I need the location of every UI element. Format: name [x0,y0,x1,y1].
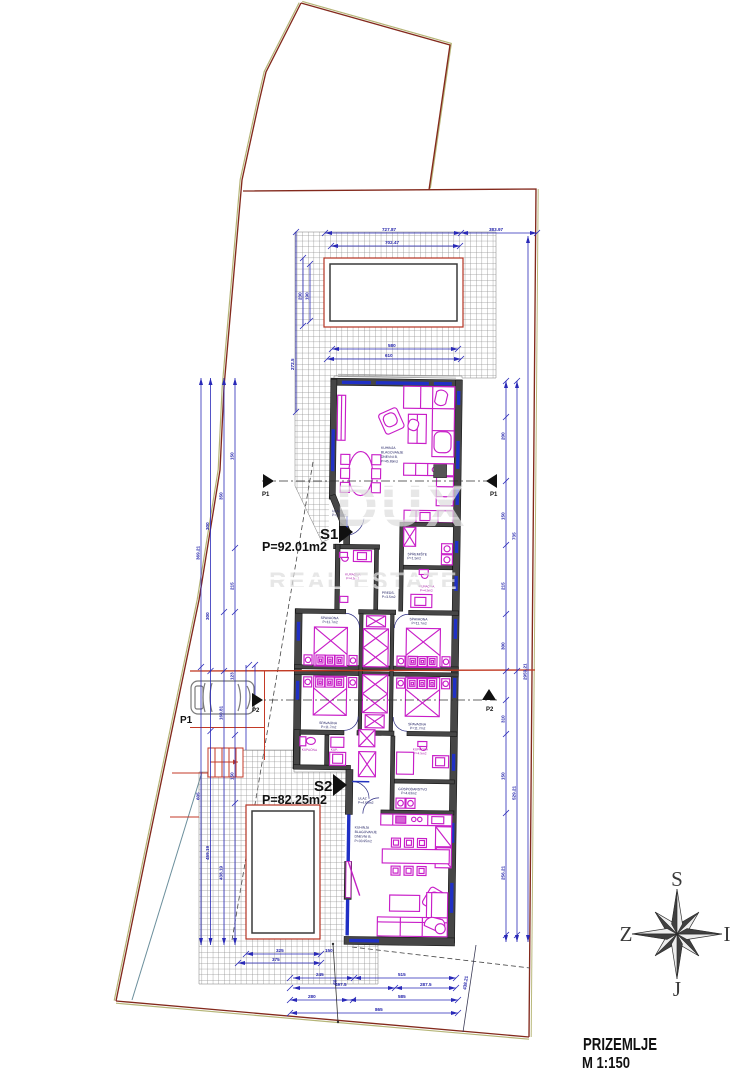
svg-text:215: 215 [230,582,235,590]
svg-text:2959.21: 2959.21 [523,663,528,680]
svg-text:P=11.7m2: P=11.7m2 [321,725,336,729]
svg-text:P1: P1 [490,492,498,498]
svg-text:I: I [724,922,731,946]
svg-text:KUP.: KUP. [331,748,338,752]
svg-text:P2: P2 [252,708,260,714]
svg-text:325: 325 [276,948,284,953]
svg-text:369.21: 369.21 [196,546,201,560]
svg-text:200: 200 [501,432,506,440]
svg-text:529.21: 529.21 [512,786,517,800]
svg-text:280: 280 [308,994,316,999]
svg-text:P2: P2 [486,707,494,713]
svg-text:300: 300 [205,522,210,530]
svg-text:190: 190 [305,292,310,300]
svg-text:P=11.7m2: P=11.7m2 [411,621,426,625]
svg-text:272.5: 272.5 [290,358,295,370]
svg-text:S: S [671,867,683,891]
svg-text:P=4.63m2: P=4.63m2 [401,791,417,795]
svg-text:459.19: 459.19 [205,846,210,860]
svg-text:375: 375 [272,957,280,962]
svg-text:580: 580 [388,343,396,348]
svg-text:M 1:150: M 1:150 [582,1055,630,1072]
svg-text:DUX: DUX [336,474,467,539]
svg-text:P=11.7m2: P=11.7m2 [322,620,337,624]
svg-text:J: J [673,977,681,1001]
svg-text:Z: Z [620,922,633,946]
svg-text:P1: P1 [180,715,193,726]
svg-text:P=82.25m2: P=82.25m2 [262,793,327,807]
svg-text:150: 150 [230,772,235,780]
svg-text:P=11.7m2: P=11.7m2 [410,726,425,730]
svg-text:310: 310 [501,715,506,723]
svg-text:P=92.01m2: P=92.01m2 [262,540,327,554]
svg-text:515: 515 [398,972,406,977]
svg-text:735: 735 [512,532,517,540]
svg-text:P=1.5m2: P=1.5m2 [407,556,421,560]
svg-text:245: 245 [316,972,324,977]
svg-text:150: 150 [230,452,235,460]
svg-text:150: 150 [501,772,506,780]
svg-text:150: 150 [501,512,506,520]
svg-text:REAL ESTATE: REAL ESTATE [269,568,459,595]
svg-text:438.19: 438.19 [219,866,224,880]
svg-text:P=45.89m2: P=45.89m2 [381,459,399,463]
svg-text:150: 150 [325,948,333,953]
svg-text:727.87: 727.87 [382,227,396,232]
svg-text:605: 605 [196,792,201,800]
svg-text:256.21: 256.21 [501,866,506,880]
svg-text:P=4.5m2: P=4.5m2 [414,751,427,755]
svg-text:610: 610 [385,353,393,358]
svg-text:383.97: 383.97 [489,227,503,232]
svg-text:350: 350 [219,492,224,500]
svg-text:300: 300 [205,612,210,620]
svg-text:585: 585 [398,994,406,999]
svg-text:PRIZEMLJE: PRIZEMLJE [583,1034,657,1054]
svg-text:123: 123 [230,672,235,680]
svg-text:215: 215 [501,582,506,590]
svg-text:P=33.95m2: P=33.95m2 [354,839,372,843]
svg-text:KUPAONA: KUPAONA [302,748,318,752]
svg-text:P1: P1 [262,492,270,498]
svg-text:P=3.5m2: P=3.5m2 [382,595,396,599]
svg-text:287.5: 287.5 [420,982,432,987]
svg-text:230: 230 [298,292,303,300]
svg-text:160.81: 160.81 [219,706,224,720]
svg-text:702.47: 702.47 [385,240,399,245]
svg-text:865: 865 [375,1007,383,1012]
svg-text:300: 300 [501,642,506,650]
